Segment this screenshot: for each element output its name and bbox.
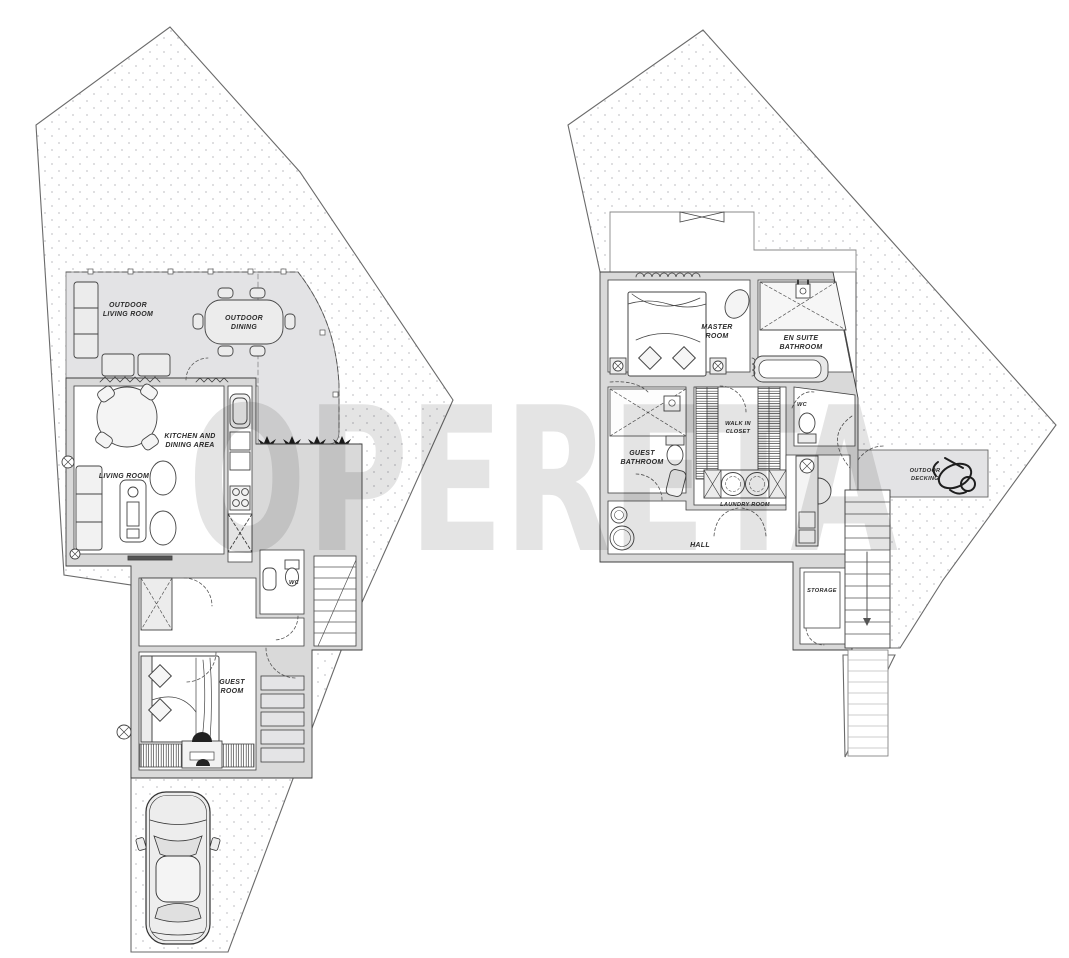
label-outdoor-living-room: OUTDOOR [109,302,147,309]
corridor-closet [141,578,172,630]
master-bed [628,292,706,376]
label-master-room-2: ROOM [706,333,729,340]
label-outdoor-living-room-2: LIVING ROOM [103,311,153,318]
label-master-room: MASTER [701,324,732,331]
entry-steps [261,676,304,762]
floor-plan-sheet: OUTDOOR LIVING ROOM OUTDOOR DINING KITCH… [0,0,1069,958]
ensuite-shower [760,280,846,330]
label-ensuite-2: BATHROOM [779,344,822,351]
watermark-text: OPERETA [188,365,898,598]
dining-table [94,382,160,451]
label-outdoor-decking-2: DECKING [911,476,939,482]
label-outdoor-dining: OUTDOOR [225,315,263,322]
label-living-room: LIVING ROOM [99,473,149,480]
label-outdoor-decking: OUTDOOR [910,468,941,474]
label-guest-room-2: ROOM [221,688,244,695]
car [136,792,221,944]
label-outdoor-dining-2: DINING [231,324,258,331]
guest-bed [141,656,219,742]
label-ensuite: EN SUITE [784,335,819,342]
floor-plan-drawing: OUTDOOR LIVING ROOM OUTDOOR DINING KITCH… [0,0,1069,958]
label-guest-room: GUEST [219,679,245,686]
